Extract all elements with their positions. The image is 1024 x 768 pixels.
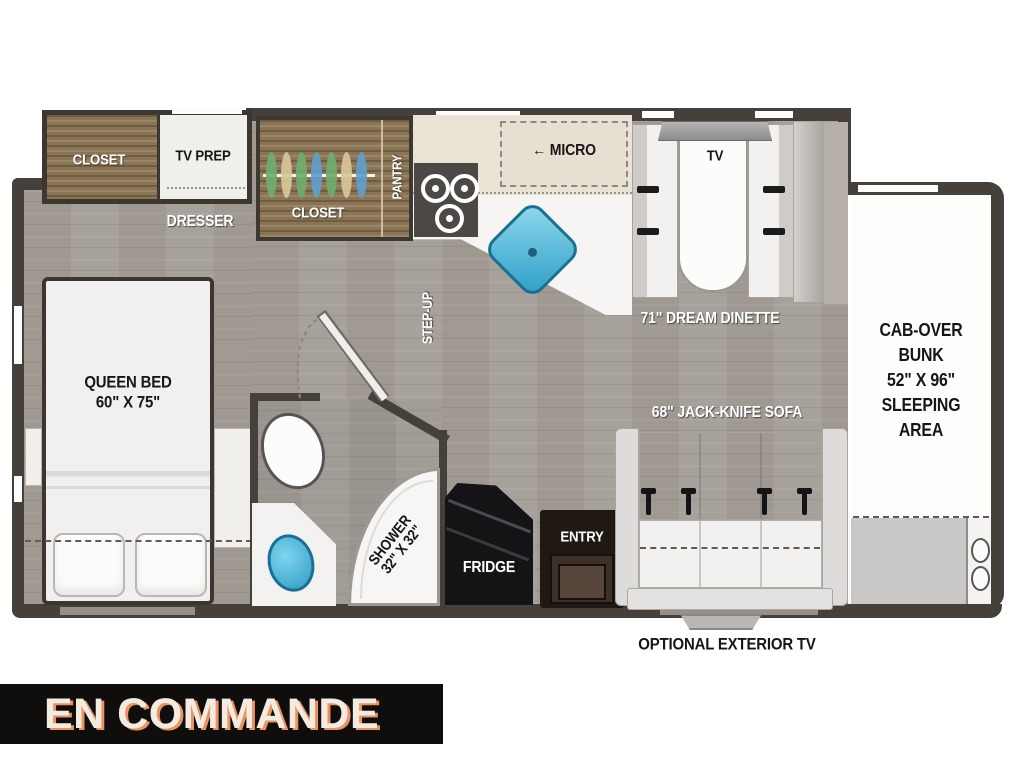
step-up-label: STEP-UP (420, 292, 434, 344)
hanger-icon (311, 152, 322, 198)
side-window (14, 476, 22, 502)
dinette-side-cabinet (824, 122, 848, 304)
queen-bed-label-line1: QUEEN BED (84, 374, 171, 391)
window (755, 111, 793, 118)
dinette-bench-left (632, 124, 678, 298)
cupholder-icon (971, 566, 990, 591)
cab-window (858, 185, 938, 192)
wardrobe-closet-label: CLOSET (292, 206, 344, 221)
cupholder-icon (971, 538, 990, 563)
tv-prep-drawer-line (167, 187, 245, 189)
nightstand (214, 428, 252, 548)
exterior-tv-bracket (680, 614, 762, 630)
side-window (14, 306, 22, 364)
bedroom-slide-line (25, 540, 252, 542)
hanger-icon (281, 152, 292, 198)
sink-drain-icon (526, 246, 539, 259)
dresser-label: DRESSER (167, 214, 234, 230)
storage-bay (60, 607, 195, 615)
dinette-bench-right (748, 124, 794, 298)
nightstand (25, 428, 42, 486)
sofa-back (639, 432, 822, 520)
left-wall (12, 178, 24, 612)
pillow (135, 533, 207, 597)
seatbelt-icon (762, 490, 767, 515)
burner-icon (421, 174, 450, 203)
dinette-armrest (637, 228, 659, 235)
cab-over-label-line4: SLEEPING (882, 396, 961, 414)
cab-over-label-line2: BUNK (898, 346, 943, 364)
sofa-front-ledge (627, 588, 833, 610)
sofa-armrest-left (615, 428, 639, 606)
bedroom-closet-label: CLOSET (73, 153, 125, 168)
pantry-divider (381, 120, 383, 237)
queen-bed (42, 277, 214, 605)
burner-icon (450, 174, 479, 203)
burner-icon (435, 204, 464, 233)
dinette-armrest (637, 186, 659, 193)
bathroom-wall-top (250, 393, 320, 401)
entry-label: ENTRY (560, 530, 603, 545)
cab-over-label-line1: CAB-OVER (879, 321, 962, 339)
sofa-seat (639, 520, 822, 588)
sofa-label: 68" JACK-KNIFE SOFA (652, 405, 802, 421)
tv-prep-label: TV PREP (175, 149, 230, 164)
hanger-icon (341, 152, 352, 198)
hanger-icon (326, 152, 337, 198)
tv-label: TV (707, 149, 724, 164)
cooktop (414, 163, 478, 237)
micro-label: ← MICRO (532, 143, 596, 159)
dinette-label: 71" DREAM DINETTE (640, 311, 779, 327)
fridge-label: FRIDGE (463, 560, 515, 576)
hanger-icon (266, 152, 277, 198)
status-banner-label: EN COMMANDE (0, 690, 379, 739)
status-banner: EN COMMANDE (0, 684, 443, 744)
sofa-slide-line (640, 547, 820, 549)
seatbelt-icon (686, 490, 691, 515)
blanket-fold (46, 486, 210, 489)
floorplan-image: CLOSET TV PREP DRESSER CLOSET PANTRY ← M… (0, 0, 1024, 768)
left-arrow-icon: ← (532, 142, 546, 159)
bunk-line (853, 516, 989, 518)
seatbelt-icon (646, 490, 651, 515)
window (642, 111, 674, 118)
dinette-partition (794, 122, 824, 302)
cab-over-label-line5: AREA (899, 421, 943, 439)
pantry-label: PANTRY (391, 155, 404, 200)
optional-exterior-tv-label: OPTIONAL EXTERIOR TV (638, 636, 815, 653)
cab-over-label-line3: 52" X 96" (887, 371, 955, 389)
seatbelt-icon (802, 490, 807, 515)
dinette-armrest (763, 186, 785, 193)
queen-bed-label-line2: 60" X 75" (96, 394, 160, 411)
tv-unit (658, 121, 772, 141)
sofa-armrest-right (822, 428, 848, 606)
pillow (53, 533, 125, 597)
slideout-window (172, 108, 242, 114)
dinette-armrest (763, 228, 785, 235)
entry-step (558, 564, 606, 600)
hanger-icon (356, 152, 367, 198)
blanket-fold (46, 471, 210, 474)
entry-door (540, 510, 624, 608)
hanger-icon (296, 152, 307, 198)
